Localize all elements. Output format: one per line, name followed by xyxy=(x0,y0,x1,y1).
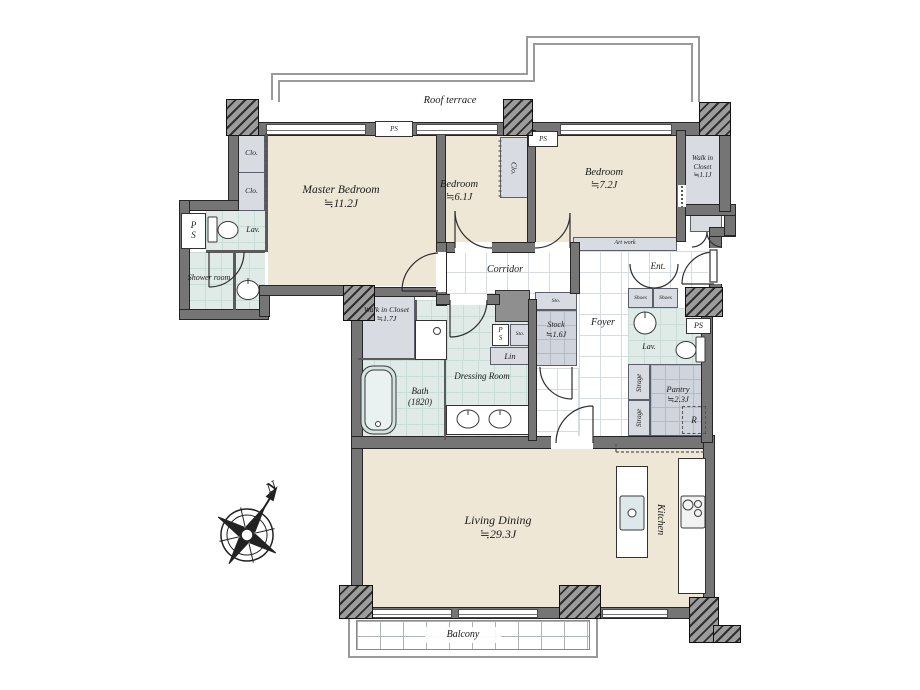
kitchen-counter xyxy=(678,458,706,594)
pipe-space-p: P xyxy=(191,221,197,231)
room-bath xyxy=(358,360,444,440)
room-shower xyxy=(189,252,233,310)
wall-right-wic xyxy=(720,131,730,211)
window-bedroom6 xyxy=(416,124,498,135)
pillar-bottom-right-foot xyxy=(714,626,740,642)
wall-master-bed6 xyxy=(437,131,445,251)
dressing-counter xyxy=(446,405,529,435)
walk-in-closet-small xyxy=(684,133,721,207)
compass-rose xyxy=(200,469,305,581)
window-living-right xyxy=(458,609,538,618)
room-master-bedroom xyxy=(268,135,437,286)
pillar-top-left xyxy=(227,100,258,135)
art-work-shelf xyxy=(573,237,677,251)
partition-clo-master xyxy=(265,133,268,252)
wall-shower-bottom xyxy=(180,310,268,319)
window-kitchen xyxy=(602,609,668,618)
roof-terrace-label: Roof terrace xyxy=(395,94,505,109)
pillar-master-corner xyxy=(344,286,374,320)
shower-unit xyxy=(415,320,447,360)
storage-tall-top xyxy=(628,364,650,400)
room-living-dining-kitchen xyxy=(362,440,704,608)
opening-front-door xyxy=(708,248,722,284)
pillar-entry xyxy=(686,288,722,316)
window-bedroom7 xyxy=(560,124,672,135)
opening-bedroom6-door xyxy=(455,242,492,253)
storage-small-mid xyxy=(510,324,530,346)
duct-shaft xyxy=(495,290,530,322)
room-pantry xyxy=(650,364,706,436)
wall-bed6-bed7 xyxy=(528,131,535,245)
partition-shower-sink xyxy=(233,252,236,310)
pillar-top-right xyxy=(700,103,730,135)
roof-terrace-outline xyxy=(272,37,699,102)
room-foyer xyxy=(579,251,628,441)
closet-between-bedrooms xyxy=(500,137,528,198)
shoes-box-right xyxy=(653,288,678,308)
opening-master-door xyxy=(436,252,446,292)
window-living-left xyxy=(372,609,452,618)
room-stock xyxy=(535,310,577,366)
opening-wic-fold-door xyxy=(678,185,686,207)
linen-closet xyxy=(490,347,529,365)
storage-small-top xyxy=(535,292,577,310)
closet-master-top xyxy=(238,135,265,173)
shoes-box-left xyxy=(628,288,653,308)
room-entrance xyxy=(628,251,710,288)
wall-left-upper xyxy=(229,133,238,207)
room-foyer-lower xyxy=(536,368,579,440)
balcony-floor xyxy=(356,620,590,650)
opening-living-door xyxy=(551,436,593,449)
kitchen-island xyxy=(616,466,648,558)
window-master xyxy=(266,124,366,135)
room-lavatory-master xyxy=(206,210,265,252)
wall-dressing-foyer xyxy=(529,300,536,440)
pillar-bottom-mid xyxy=(560,586,600,618)
wall-left-lower xyxy=(180,201,189,319)
pillar-bottom-left xyxy=(340,586,372,618)
room-lavatory-entry xyxy=(628,308,704,364)
floor-plan: PS PS P S P S PS R xyxy=(0,0,920,690)
pillar-top-mid xyxy=(504,100,532,135)
opening-bedroom7-door xyxy=(535,242,570,253)
storage-tall-bottom xyxy=(628,400,650,436)
compass-north-label: N xyxy=(258,475,286,501)
room-bedroom-7 xyxy=(535,133,677,243)
pipe-space-s: S xyxy=(191,231,196,241)
opening-dressing-door xyxy=(450,294,487,305)
wall-corridor-foyer xyxy=(571,243,579,293)
closet-master-bottom xyxy=(238,172,265,211)
